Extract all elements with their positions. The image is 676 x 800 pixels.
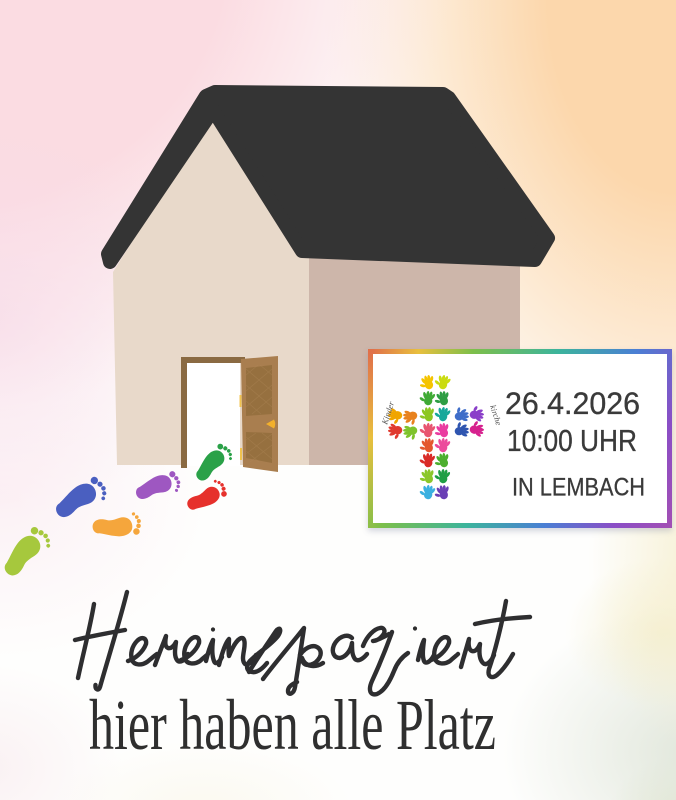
svg-text:hier haben alle Platz: hier haben alle Platz xyxy=(89,685,496,765)
